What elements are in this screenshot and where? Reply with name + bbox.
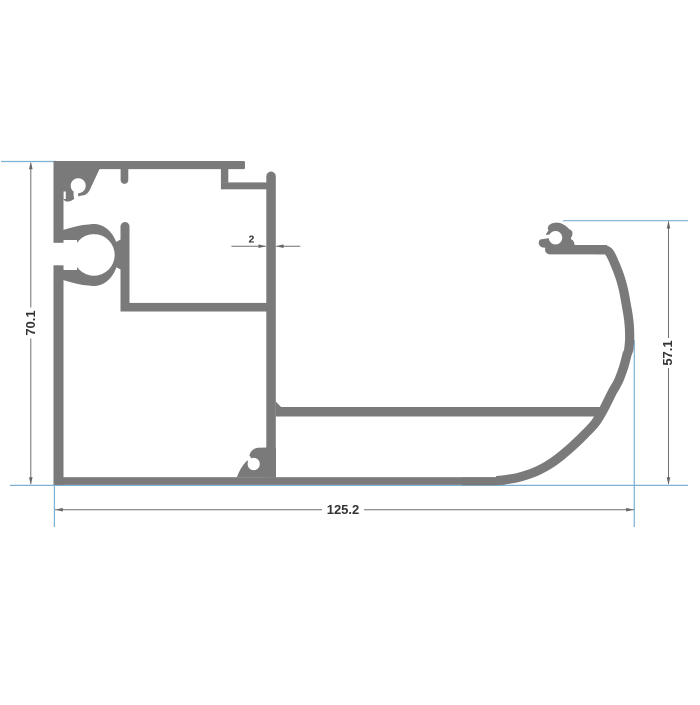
svg-text:70.1: 70.1 xyxy=(23,310,38,335)
svg-text:125.2: 125.2 xyxy=(327,502,360,517)
svg-text:57.1: 57.1 xyxy=(660,340,675,365)
svg-text:2: 2 xyxy=(248,233,254,245)
